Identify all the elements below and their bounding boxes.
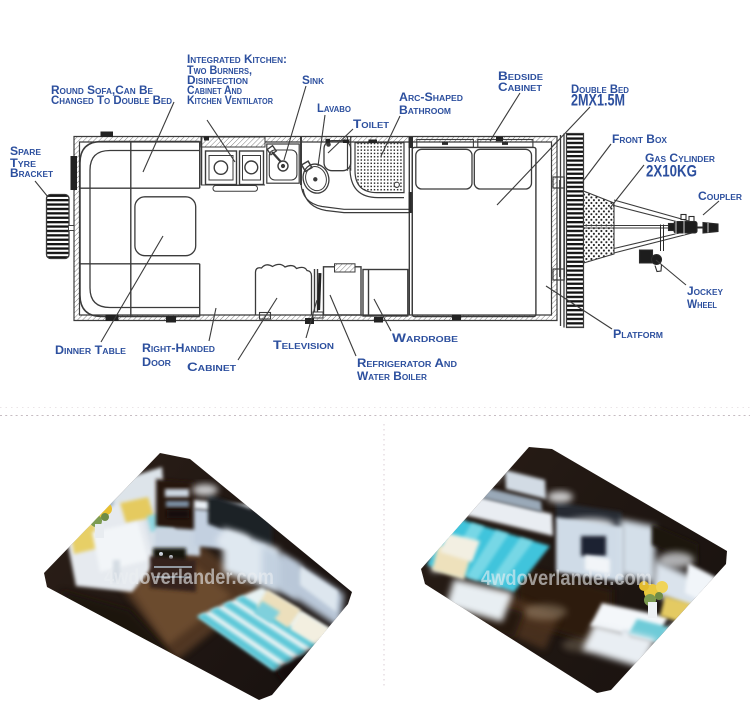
- svg-text:Right-Handed: Right-Handed: [142, 343, 215, 355]
- svg-text:Kitchen Ventilator: Kitchen Ventilator: [187, 95, 273, 107]
- svg-text:Changed To Double Bed: Changed To Double Bed: [51, 95, 172, 107]
- svg-text:Wheel: Wheel: [687, 299, 717, 311]
- svg-text:Front Box: Front Box: [612, 134, 668, 146]
- svg-text:Refrigerator And: Refrigerator And: [357, 358, 457, 370]
- svg-text:Sink: Sink: [302, 75, 324, 87]
- svg-text:Cabinet: Cabinet: [498, 82, 542, 94]
- svg-text:4wdoverlander.com: 4wdoverlander.com: [104, 565, 274, 589]
- svg-text:Door: Door: [142, 357, 171, 369]
- svg-text:Coupler: Coupler: [698, 191, 742, 203]
- svg-text:Toilet: Toilet: [353, 119, 389, 131]
- svg-text:Arc-Shaped: Arc-Shaped: [399, 92, 463, 104]
- svg-text:Lavabo: Lavabo: [317, 103, 351, 115]
- svg-text:Spare: Spare: [10, 146, 42, 158]
- svg-text:Water Boiler: Water Boiler: [357, 371, 427, 383]
- svg-text:Bathroom: Bathroom: [399, 105, 451, 117]
- svg-text:Bracket: Bracket: [10, 168, 53, 180]
- svg-text:Cabinet: Cabinet: [187, 362, 236, 374]
- svg-text:2X10KG: 2X10KG: [646, 163, 697, 181]
- svg-text:Jockey: Jockey: [687, 286, 724, 298]
- svg-text:Platform: Platform: [613, 329, 663, 341]
- svg-text:2MX1.5M: 2MX1.5M: [571, 92, 625, 110]
- svg-text:Wardrobe: Wardrobe: [392, 333, 459, 345]
- svg-text:4wdoverlander.com: 4wdoverlander.com: [481, 566, 652, 590]
- svg-text:Television: Television: [273, 340, 334, 352]
- svg-text:Dinner Table: Dinner Table: [55, 345, 127, 357]
